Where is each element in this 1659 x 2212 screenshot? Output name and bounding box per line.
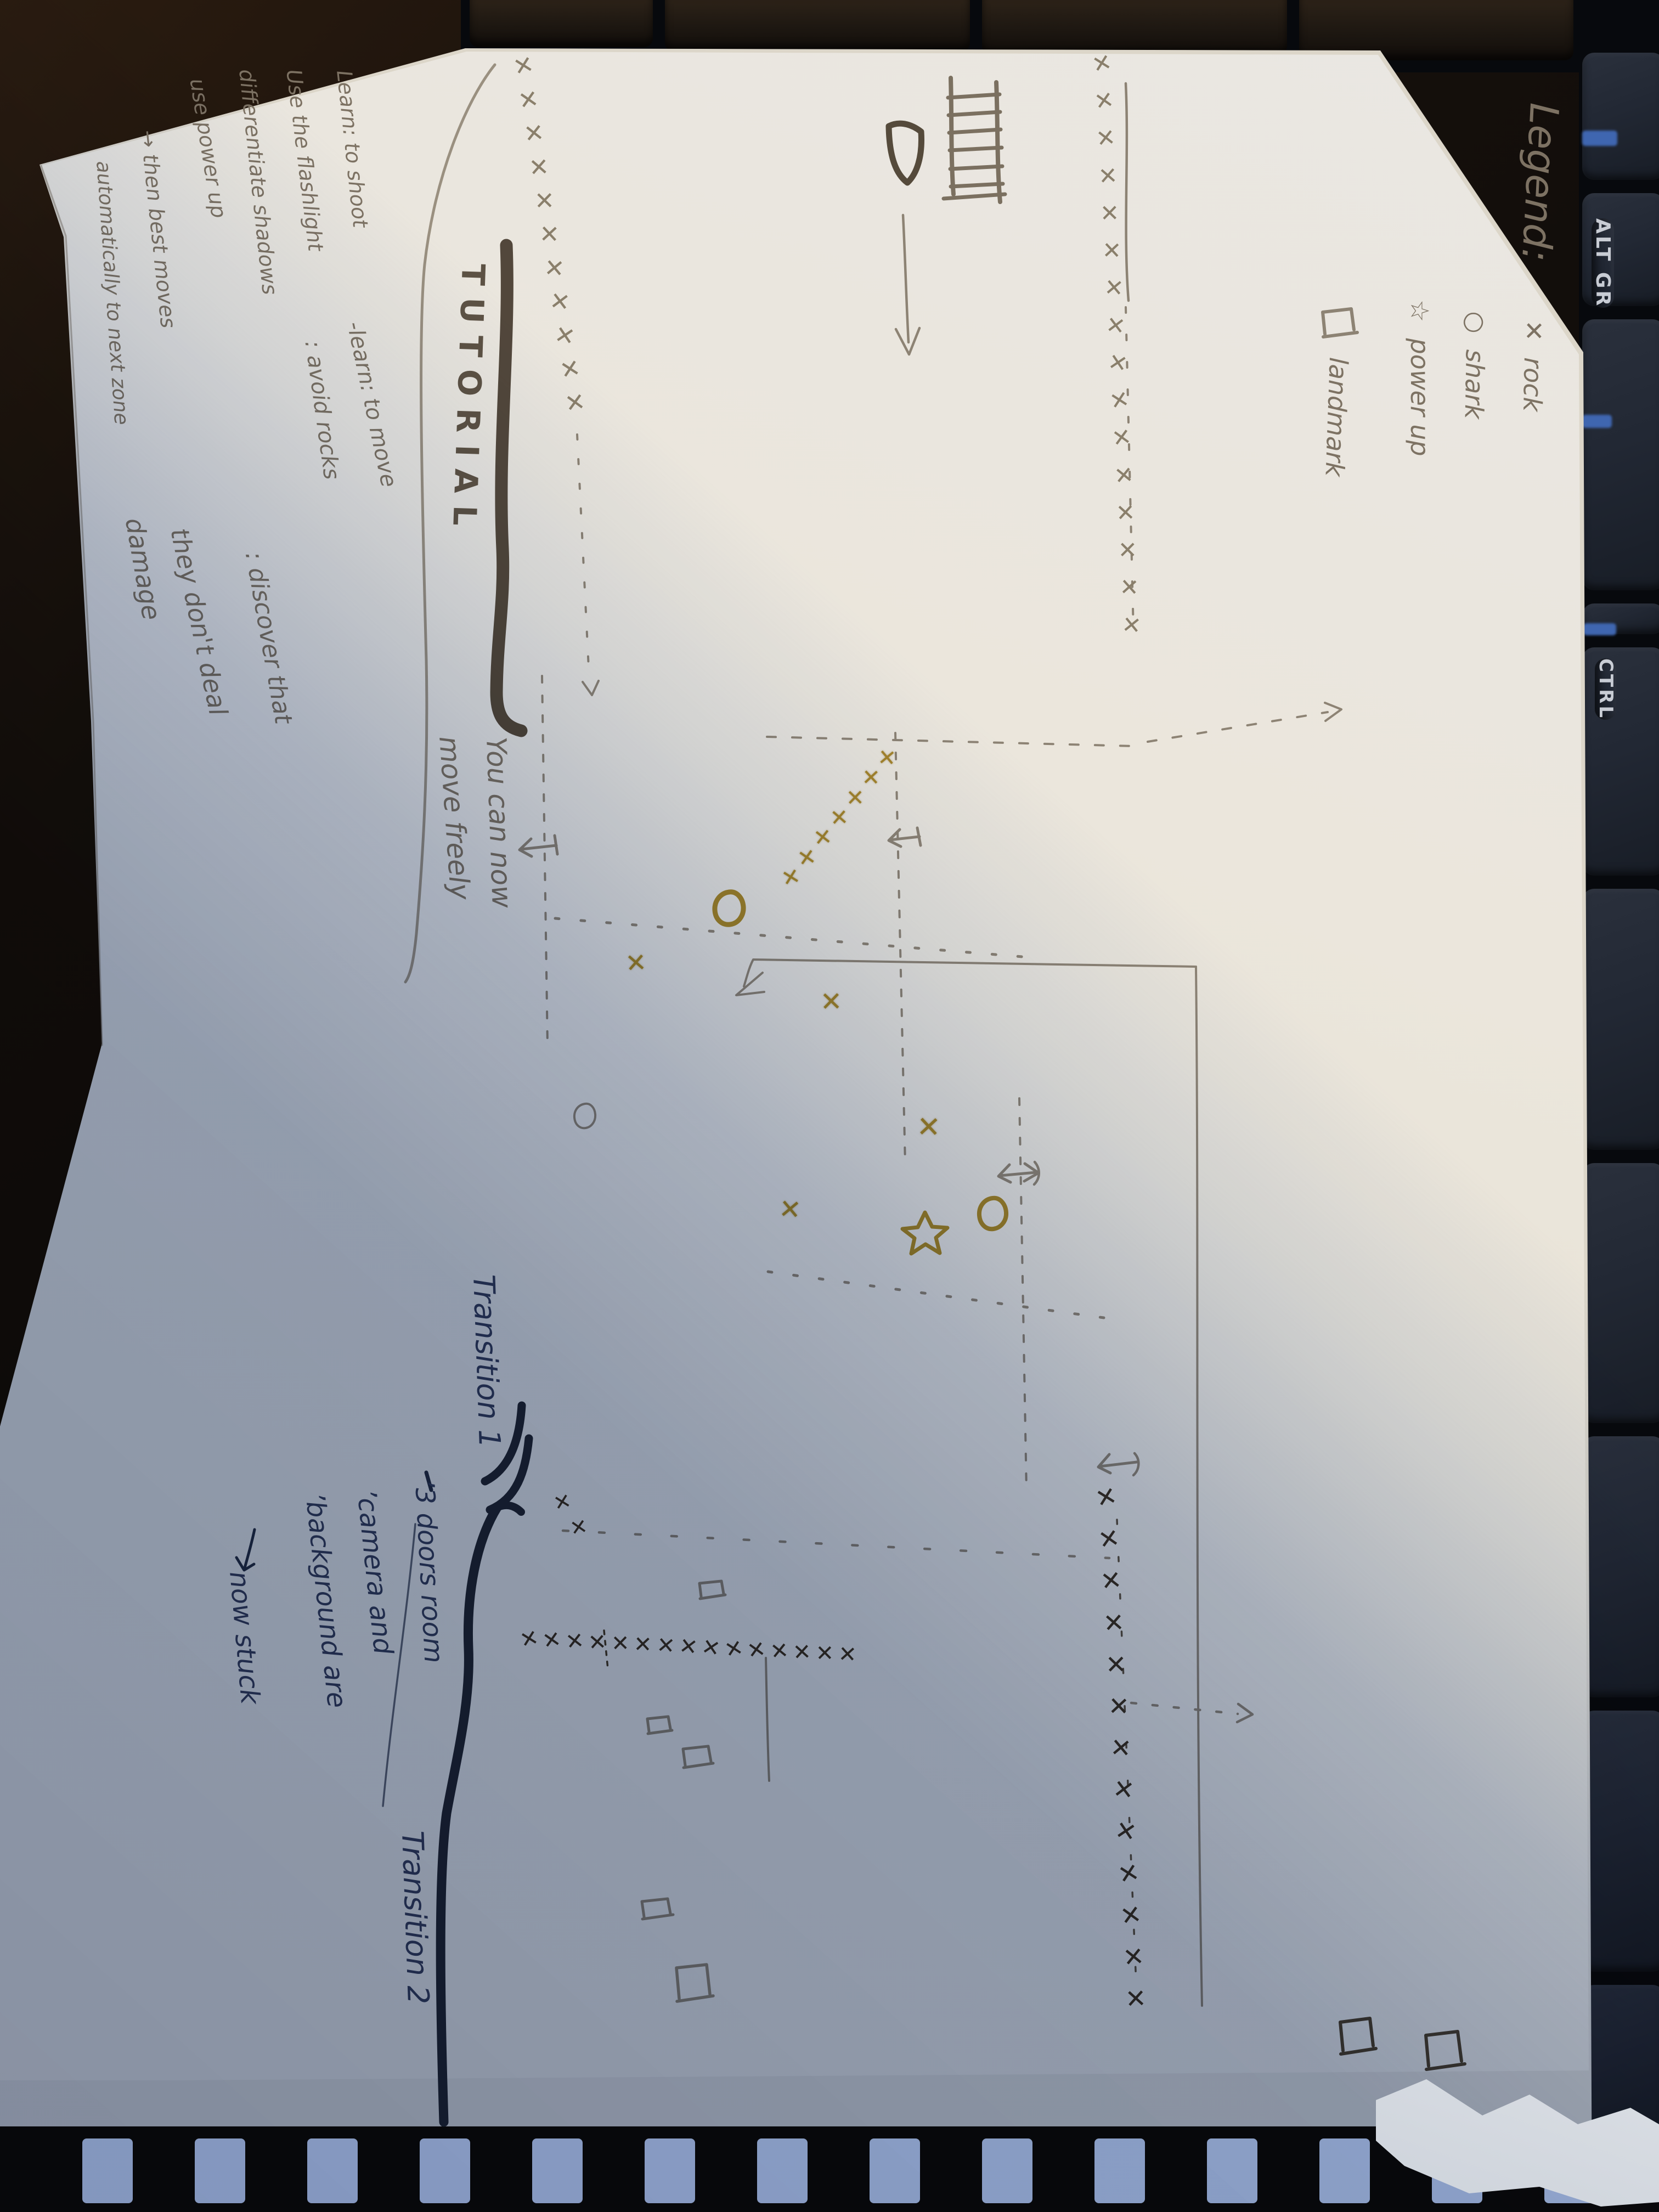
rock-row-tutorial-mark: ✕ — [534, 189, 555, 214]
rock-col-right-mark: ✕ — [1121, 1943, 1145, 1971]
legend-item-landmark: landmark — [1320, 357, 1353, 477]
landmark-flag-4 — [642, 1899, 673, 1919]
door-x-head — [1098, 1454, 1110, 1473]
rock-col-right-mark: ✕ — [1111, 1776, 1136, 1804]
note-you-can-now: You can now — [480, 736, 517, 909]
rock-row-bottom-mark: ✕ — [541, 1628, 563, 1652]
rock-row-bottom-mark: ✕ — [611, 1633, 629, 1655]
landmark-flag-2 — [647, 1717, 672, 1734]
gold-shark-ring-2 — [979, 1198, 1006, 1229]
gold-rock-mark: ✕ — [916, 1113, 941, 1142]
gold-shark-ring-1 — [715, 892, 743, 924]
door-x-shaft — [1099, 1462, 1137, 1466]
door-f-shaft — [1000, 1172, 1036, 1176]
rock-row-tutorial-mark: ✕ — [528, 155, 550, 180]
zone-dash-d — [542, 676, 548, 1045]
shield-arrow — [903, 215, 909, 342]
rock-row-bottom-mark: ✕ — [769, 1639, 790, 1663]
rock-row-tutorial-mark: ✕ — [539, 223, 560, 247]
rock-row-2-mark: ✕ — [1113, 463, 1134, 488]
rock-row-2-mark: ✕ — [1110, 425, 1133, 451]
rock-row-2-mark: ✕ — [1106, 350, 1130, 376]
tutorial-underline — [496, 245, 521, 731]
rock-row-bottom-mark: ✕ — [792, 1641, 812, 1664]
rock-row-2-mark: ✕ — [1097, 163, 1118, 188]
rock-row-tutorial-mark: ✕ — [548, 289, 572, 316]
dash-a2-arrowhead — [583, 681, 599, 695]
rock-col-right-mark: ✕ — [1105, 1651, 1127, 1677]
legend-item-shark: ○ shark — [1459, 311, 1490, 419]
legend-landmark-flag — [1323, 309, 1357, 337]
stuck-arrow — [245, 1530, 255, 1568]
door-x-curl — [1133, 1453, 1138, 1475]
rock-row-2-mark: ✕ — [1103, 276, 1125, 301]
rock-col-right-mark: ✕ — [1102, 1609, 1125, 1636]
gold-rock-chain-mark: ✕ — [877, 747, 897, 770]
dot-path-g2 — [768, 1272, 1104, 1318]
divider-line — [766, 1658, 769, 1781]
legend-item-powerup: ☆ power up — [1405, 300, 1434, 456]
gold-rock-mark: ✕ — [820, 988, 843, 1015]
gold-rock-chain-mark: ✕ — [845, 787, 864, 809]
rock-row-2-mark: ✕ — [1092, 88, 1115, 114]
rock-row-tutorial-mark: ✕ — [544, 256, 566, 281]
landmark-flag-3 — [683, 1746, 713, 1768]
label-transition-1: Transition 1 — [466, 1274, 506, 1448]
ladder-rail-1 — [951, 78, 953, 194]
gold-powerup-star — [902, 1212, 947, 1254]
gold-rock-mark: ✕ — [624, 950, 647, 977]
rock-row-2-mark: ✕ — [1095, 126, 1117, 151]
keycap-label-altgr: ALT GR — [1592, 218, 1614, 308]
gold-rock-chain-mark: ✕ — [812, 826, 833, 850]
landmark-flag-1 — [699, 1581, 725, 1599]
rock-row-bottom-mark: ✕ — [656, 1634, 676, 1658]
rock-row-2-mark: ✕ — [1100, 201, 1120, 225]
rock-row-2-mark: ✕ — [1119, 576, 1139, 600]
door-d-shaft — [521, 845, 556, 849]
rock-row-2-mark: ✕ — [1115, 501, 1136, 525]
door-e-cap — [917, 828, 921, 845]
rock-col-right-mark: ✕ — [1096, 1525, 1121, 1553]
rock-col-right-mark: ✕ — [1099, 1567, 1123, 1594]
door-d-cap — [555, 836, 557, 854]
rock-row-bottom-mark: ✕ — [565, 1629, 585, 1654]
sheet-left-seam — [41, 166, 102, 1045]
rock-row-2-mark: ✕ — [1102, 239, 1122, 262]
door-e-shaft — [890, 837, 919, 840]
rock-row-bottom-mark: ✕ — [588, 1631, 607, 1654]
rock-row-bottom-mark: ✕ — [816, 1643, 834, 1664]
dash-a2 — [577, 435, 589, 679]
gold-rock-chain-mark: ✕ — [861, 767, 881, 789]
legend-item-rock: ✕ rock — [1517, 320, 1548, 412]
zone-dash-f — [1019, 1098, 1026, 1490]
row2-line — [1126, 83, 1128, 301]
legend-title: Legend: — [1513, 102, 1567, 263]
rock-col-right-mark: ✕ — [1108, 1693, 1130, 1719]
rock-row-tutorial-mark: ✕ — [517, 87, 541, 114]
pencil-shark-circle — [574, 1104, 595, 1128]
rock-row-tutorial-mark: ✕ — [563, 390, 587, 417]
dash-path-i — [563, 1531, 1109, 1558]
rock-pair-mark: ✕ — [568, 1516, 589, 1539]
rock-row-bottom-mark: ✕ — [678, 1635, 699, 1659]
keycap-label-ctrl: CTRL — [1595, 658, 1616, 720]
photo-of-level-sketch: ✕✕✕✕✕✕✕✕✕✕✕✕✕✕✕✕✕✕✕✕✕✕✕✕✕✕✕✕✕✕✕✕✕✕✕✕✕✕✕✕… — [0, 0, 1659, 2212]
rock-row-bottom-mark: ✕ — [746, 1638, 767, 1663]
room-rect-arrowhead — [736, 973, 764, 995]
rock-col-right-mark: ✕ — [1109, 1735, 1132, 1762]
bracket-b-hook — [497, 1505, 521, 1512]
rock-row-bottom-mark: ✕ — [838, 1643, 857, 1666]
landmark-flag-6 — [1340, 2018, 1376, 2054]
room-rect-right — [1196, 967, 1202, 2006]
rock-row-bottom-mark: ✕ — [633, 1633, 652, 1656]
bracket-b — [441, 1508, 497, 2122]
zone-dash-c2 — [1148, 712, 1328, 742]
landmark-flag-7 — [1426, 2032, 1465, 2069]
label-transition-2: Transition 2 — [395, 1830, 435, 2005]
shield — [889, 123, 921, 183]
landmark-flag-5 — [676, 1965, 713, 2001]
dot-path-h — [1131, 1703, 1238, 1714]
rock-col-right-mark: ✕ — [1119, 1901, 1143, 1929]
gold-rock-mark: ✕ — [778, 1195, 802, 1223]
rock-row-2-mark: ✕ — [1121, 613, 1142, 637]
rock-col-right-mark: ✕ — [1125, 1985, 1147, 2012]
rock-row-2-mark: ✕ — [1118, 539, 1137, 562]
dash-h-arrowhead — [1237, 1704, 1252, 1722]
room-rect-top — [744, 960, 1196, 986]
rock-row-tutorial-mark: ✕ — [522, 121, 545, 147]
rock-row-2-mark: ✕ — [1104, 313, 1127, 338]
zone-dash-c — [767, 737, 1135, 746]
zone-dash-e — [895, 733, 905, 1164]
